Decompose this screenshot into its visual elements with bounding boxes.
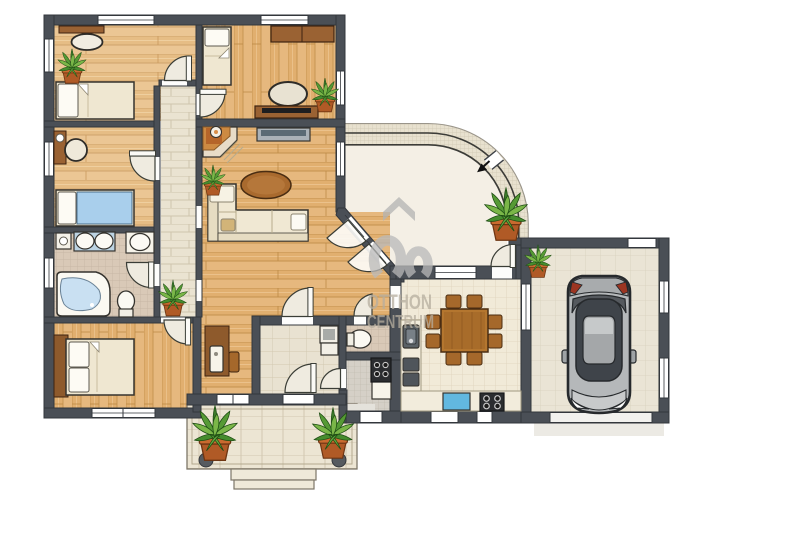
svg-text:OTTHON: OTTHON bbox=[367, 291, 432, 314]
svg-text:CENTRUM: CENTRUM bbox=[367, 312, 434, 332]
